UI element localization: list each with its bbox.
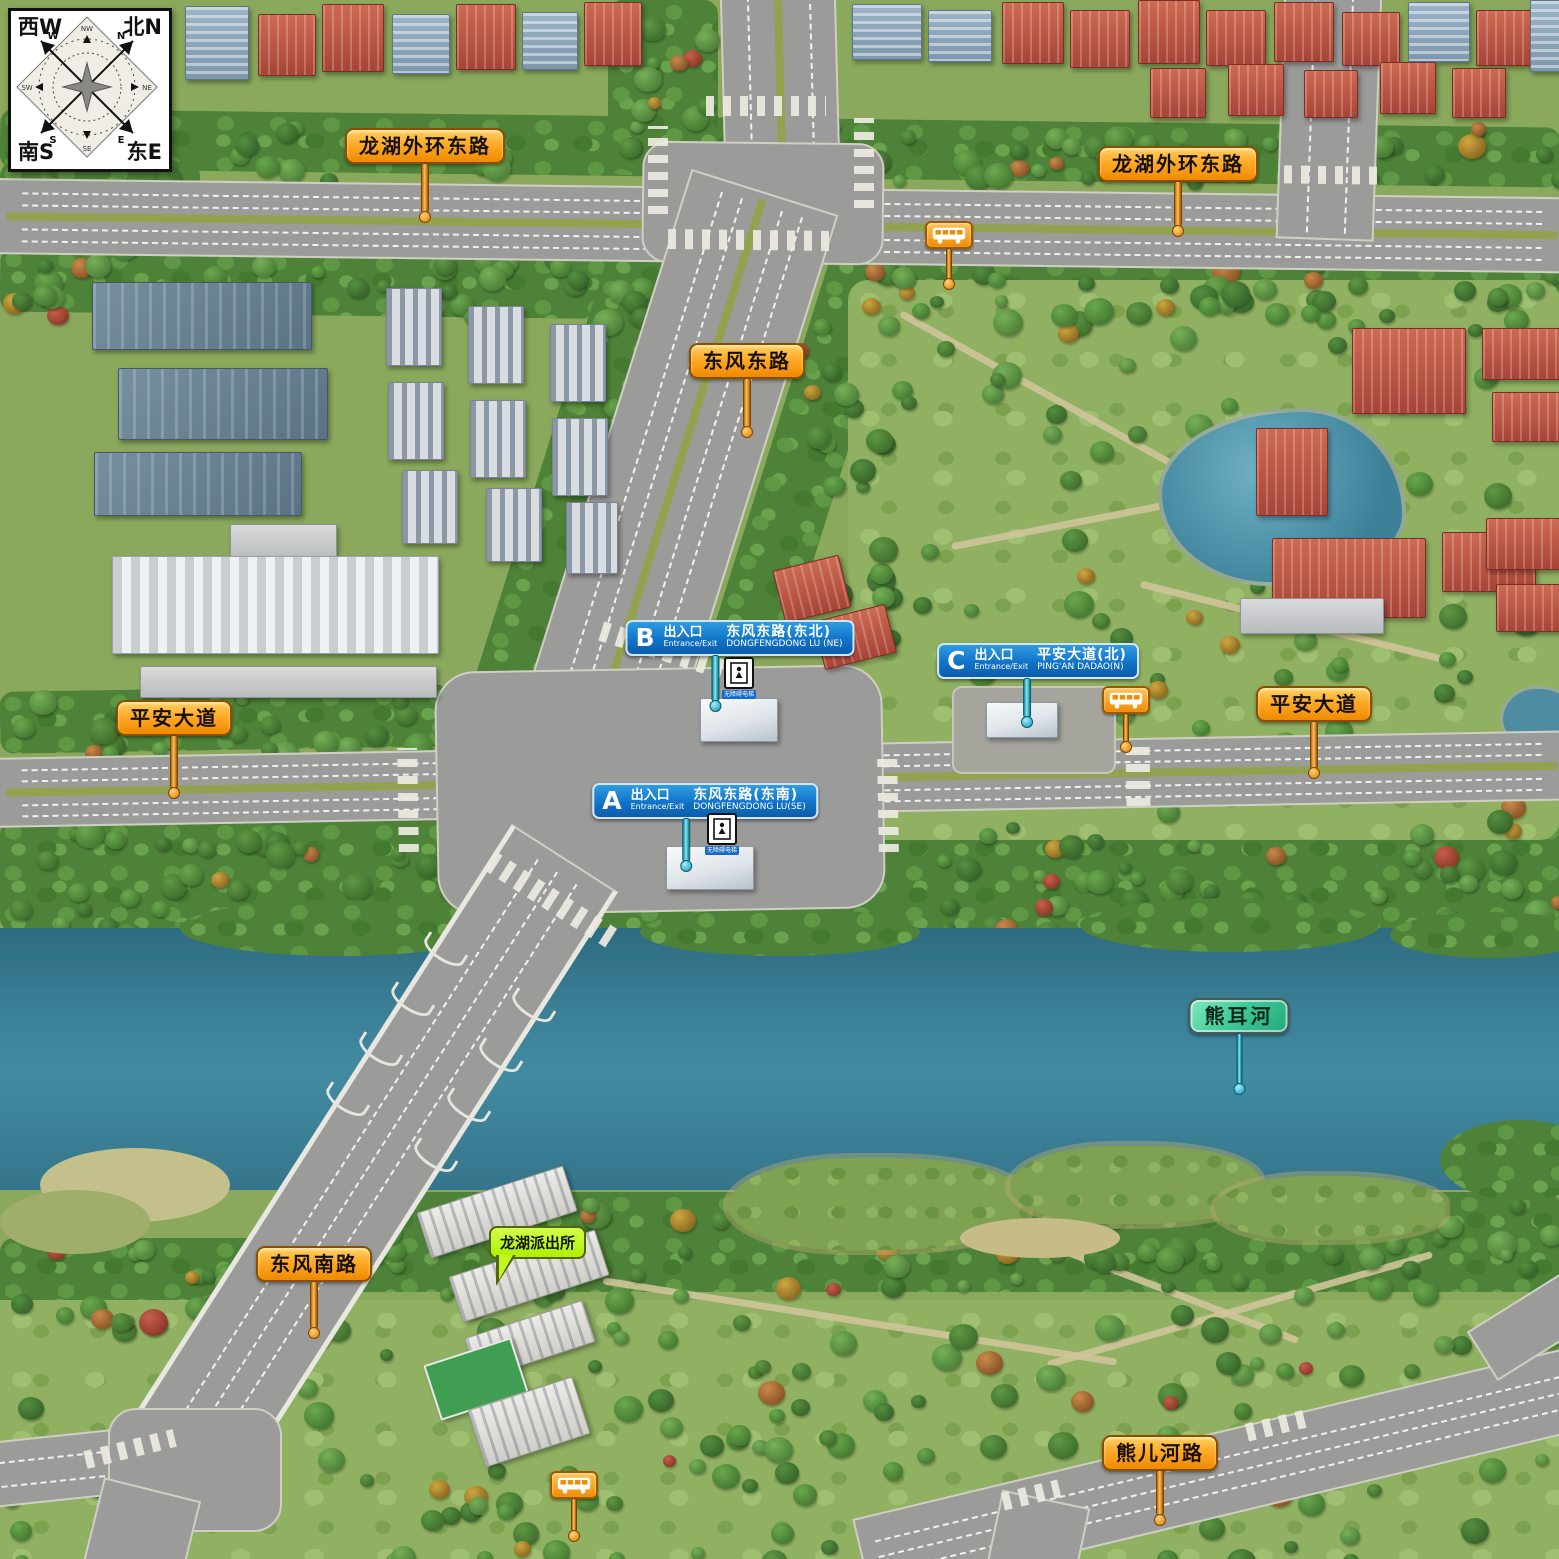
tree — [1536, 147, 1553, 162]
tree — [1166, 869, 1193, 893]
building — [1496, 584, 1559, 632]
tree — [37, 851, 58, 870]
road-sign-label: 平安大道 — [1256, 686, 1372, 722]
sign-pole-tip — [1120, 741, 1132, 753]
tree — [764, 1437, 793, 1463]
tree — [1339, 1365, 1364, 1387]
compass-rose-icon: 西W 北N 南S 东E W N — [8, 8, 172, 172]
tree — [1276, 1363, 1294, 1379]
tree — [1410, 824, 1434, 845]
tree — [742, 1479, 758, 1493]
building — [1482, 328, 1559, 380]
tree — [1206, 1257, 1221, 1271]
tree — [1161, 1281, 1175, 1293]
sign-pole — [682, 818, 690, 862]
tree — [660, 1417, 683, 1438]
bus-stop-1[interactable] — [925, 221, 973, 290]
tree — [1118, 862, 1132, 874]
entrance-road-cn: 东风东路(东南) — [693, 788, 805, 803]
road-sign-dongfeng-east[interactable]: 东风东路 — [689, 343, 805, 438]
tree — [1081, 172, 1095, 185]
tree — [266, 842, 295, 868]
river-sign-xiongerhe[interactable]: 熊耳河 — [1189, 998, 1290, 1095]
tree — [1171, 1305, 1194, 1326]
tree — [1163, 1396, 1178, 1410]
road-sign-label: 熊儿河路 — [1102, 1435, 1218, 1471]
tree — [964, 604, 979, 617]
road-sign-pingan-avenue-2[interactable]: 平安大道 — [1256, 686, 1372, 779]
tree — [1459, 875, 1478, 892]
tree — [826, 1283, 841, 1296]
tree — [984, 163, 1013, 189]
building — [456, 4, 516, 70]
tree — [1284, 1541, 1298, 1553]
tree — [1137, 1243, 1158, 1262]
compass-east-label: 东E — [127, 142, 162, 163]
tree — [1090, 441, 1114, 463]
tree — [755, 1360, 771, 1374]
tree — [648, 1389, 674, 1412]
building — [852, 4, 922, 60]
tree — [1049, 157, 1064, 170]
tree — [1036, 1365, 1065, 1391]
building — [1408, 2, 1470, 62]
tree — [819, 1430, 837, 1446]
tree — [619, 138, 642, 158]
building — [258, 14, 316, 76]
crosswalk — [648, 126, 668, 214]
tree — [613, 1331, 629, 1345]
tree — [1035, 899, 1053, 916]
tree — [937, 855, 951, 867]
tree — [1077, 568, 1095, 584]
building — [386, 288, 442, 366]
building — [388, 382, 444, 460]
building — [92, 282, 312, 350]
sign-pole-tip — [419, 211, 431, 223]
compass-south-label: 南S — [18, 142, 54, 163]
sign-pole — [1023, 678, 1031, 718]
building — [1342, 12, 1400, 66]
road-sign-pingan-avenue-1[interactable]: 平安大道 — [116, 700, 232, 799]
tree — [1078, 276, 1095, 291]
tree — [1451, 1336, 1472, 1355]
tree — [1403, 850, 1421, 866]
tree — [304, 1402, 334, 1429]
tree — [227, 880, 249, 900]
tree — [630, 121, 644, 133]
tree — [477, 1551, 493, 1559]
tree — [937, 341, 955, 357]
building — [1256, 428, 1328, 516]
sign-pole-tip — [568, 1530, 580, 1542]
tree — [1439, 604, 1467, 629]
tree — [1458, 134, 1486, 159]
tree — [990, 373, 1005, 386]
building — [94, 452, 302, 516]
tree — [1304, 272, 1323, 289]
building — [584, 2, 642, 66]
tree — [771, 1523, 794, 1544]
tree — [1386, 1238, 1404, 1254]
crosswalk — [854, 118, 874, 208]
tree — [120, 889, 140, 907]
tree — [514, 1541, 531, 1557]
building — [1150, 68, 1206, 118]
tree — [293, 842, 308, 855]
tree — [1340, 1527, 1360, 1545]
building — [566, 502, 618, 574]
tree — [792, 1363, 811, 1380]
tree — [700, 1435, 724, 1457]
tree — [1234, 1403, 1252, 1420]
crosswalk — [706, 96, 826, 116]
sign-pole — [1236, 1033, 1242, 1085]
tree — [1119, 358, 1136, 373]
tree — [823, 476, 846, 496]
tree — [949, 1324, 978, 1350]
tree — [429, 1480, 450, 1499]
tree — [1500, 1249, 1513, 1261]
river-sign-label: 熊耳河 — [1189, 998, 1290, 1034]
tree — [1551, 170, 1559, 189]
tree — [1062, 138, 1081, 155]
tree — [211, 872, 229, 888]
compass-arrow-e: E — [118, 135, 125, 146]
tree — [1216, 1352, 1241, 1375]
building — [1002, 2, 1064, 64]
tree — [1331, 657, 1348, 672]
tree — [311, 266, 325, 278]
tree — [1156, 1247, 1184, 1272]
building — [1206, 10, 1266, 66]
tree — [1051, 304, 1077, 327]
tree — [139, 1309, 168, 1336]
tree — [1006, 822, 1020, 834]
tree — [18, 1397, 44, 1420]
tree — [917, 1448, 935, 1464]
river-xionger — [0, 928, 1559, 1190]
tree — [1201, 1317, 1229, 1343]
tree — [89, 718, 118, 744]
building — [468, 306, 524, 384]
tree — [1299, 1362, 1313, 1375]
sign-pole-tip — [943, 278, 955, 290]
tree — [865, 263, 885, 281]
tree — [658, 1331, 678, 1349]
building — [1452, 68, 1506, 118]
tree — [1095, 1315, 1124, 1341]
tree — [901, 130, 916, 144]
sign-pole-tip — [741, 426, 753, 438]
tree — [255, 156, 280, 178]
building — [112, 556, 439, 654]
building — [1240, 598, 1384, 634]
tree — [543, 1540, 570, 1559]
tree — [957, 1280, 970, 1292]
tree — [276, 123, 298, 143]
tree — [1370, 889, 1387, 904]
road-sign-longhu-outer-east-2[interactable]: 龙湖外环东路 — [1098, 146, 1258, 237]
accessible-elevator-a: 无障碍电梯 — [705, 813, 739, 855]
building — [402, 470, 458, 544]
compass-north-label: 北N — [123, 17, 162, 38]
river-bank — [1080, 898, 1380, 952]
building — [470, 400, 526, 478]
tree — [1434, 684, 1455, 703]
tree — [670, 1209, 696, 1232]
tree — [806, 426, 831, 449]
tree — [1192, 720, 1210, 736]
tree — [1262, 137, 1278, 151]
road-sign-dongfeng-south[interactable]: 东风南路 — [256, 1246, 372, 1339]
tree — [1484, 483, 1512, 509]
tree — [1199, 297, 1220, 316]
tree — [758, 1381, 785, 1405]
accessible-elevator-label: 无障碍电梯 — [722, 690, 756, 699]
tree — [670, 55, 688, 71]
tree — [1322, 1245, 1343, 1264]
building — [230, 524, 337, 560]
tree — [979, 828, 997, 844]
tree — [1087, 834, 1104, 849]
entrance-road-cn: 平安大道(北) — [1037, 648, 1127, 663]
tree — [13, 718, 35, 738]
tree — [441, 1507, 461, 1525]
tree — [1518, 1260, 1537, 1277]
accessible-elevator-label: 无障碍电梯 — [705, 846, 739, 855]
building — [550, 324, 606, 402]
tree — [1071, 1391, 1094, 1412]
tree — [1274, 669, 1293, 686]
tree — [1501, 879, 1523, 899]
tree — [980, 1435, 1007, 1459]
building — [1070, 10, 1130, 68]
tree — [1294, 1287, 1314, 1305]
tree — [11, 1294, 33, 1314]
tree — [1093, 1252, 1116, 1273]
accessible-elevator-b: 无障碍电梯 — [722, 657, 756, 699]
tree — [182, 838, 199, 853]
tree — [793, 1484, 817, 1506]
tree — [1259, 1324, 1282, 1344]
tree — [881, 1276, 905, 1298]
tree — [1010, 1273, 1023, 1285]
building — [1228, 64, 1284, 116]
tree — [605, 1288, 634, 1314]
crosswalk — [877, 754, 899, 852]
tree — [1328, 337, 1347, 354]
tree — [1413, 1283, 1439, 1306]
tree — [673, 1289, 689, 1303]
tree — [235, 135, 259, 156]
tree — [1204, 885, 1219, 898]
tree — [10, 1521, 32, 1541]
police-station-label: 龙湖派出所 — [500, 1234, 575, 1252]
tree — [1487, 810, 1513, 834]
tree — [85, 254, 111, 278]
tree — [1424, 165, 1445, 184]
tree — [588, 1360, 602, 1373]
tree — [822, 363, 842, 381]
entrance-sign-c[interactable]: C 出入口 Entrance/Exit 平安大道(北) PING'AN DADA… — [937, 643, 1139, 728]
tree — [893, 175, 906, 187]
road-sign-xiongerhe-road[interactable]: 熊儿河路 — [1102, 1435, 1218, 1526]
road-sign-longhu-outer-east-1[interactable]: 龙湖外环东路 — [345, 128, 505, 223]
tree — [988, 272, 1006, 288]
entrance-title-en: Entrance/Exit — [974, 663, 1028, 672]
tree — [894, 269, 916, 289]
tree — [1266, 847, 1286, 865]
crosswalk — [1125, 744, 1150, 806]
tree — [1130, 872, 1144, 885]
bus-stop-icon — [925, 221, 973, 249]
building — [185, 6, 249, 80]
tree — [252, 256, 276, 277]
entrance-road-en: PING'AN DADAO(N) — [1037, 663, 1127, 673]
tree — [976, 1351, 1003, 1375]
tree — [804, 385, 821, 400]
tree — [1348, 277, 1368, 295]
wetland-island — [1215, 1176, 1445, 1240]
building — [1352, 328, 1466, 414]
tree — [663, 1455, 676, 1467]
tree — [1265, 303, 1289, 325]
compass-minor-right: NE — [142, 84, 152, 92]
tree — [614, 1396, 643, 1422]
tree — [1406, 472, 1433, 496]
sign-pole-tip — [168, 787, 180, 799]
tree — [995, 295, 1008, 307]
tree — [912, 303, 930, 319]
tree — [33, 285, 57, 306]
sign-pole — [946, 248, 952, 280]
sign-pole — [421, 163, 429, 213]
tree — [1043, 874, 1060, 889]
tree — [1059, 835, 1084, 858]
tree — [198, 841, 216, 857]
tree — [1160, 277, 1179, 294]
crosswalk — [397, 748, 419, 852]
tree — [185, 1271, 199, 1284]
tree — [365, 725, 389, 747]
tree — [689, 1459, 706, 1474]
building — [1486, 518, 1559, 570]
tree — [634, 67, 662, 92]
tree — [956, 858, 981, 880]
tree — [940, 898, 959, 915]
building — [140, 666, 437, 698]
tree — [260, 716, 280, 734]
bus-stop-3[interactable] — [550, 1471, 598, 1542]
entrance-letter: B — [635, 625, 654, 650]
tree — [1367, 1484, 1382, 1497]
tree — [993, 309, 1023, 336]
tree — [921, 544, 939, 560]
tree — [639, 17, 666, 41]
tree — [1092, 613, 1110, 629]
tree — [869, 537, 898, 563]
sign-pole-tip — [1154, 1514, 1166, 1526]
tree — [360, 1474, 374, 1487]
tree — [421, 1510, 444, 1531]
sign-pole-tip — [1172, 225, 1184, 237]
tree — [29, 690, 57, 715]
tree — [1048, 1432, 1078, 1459]
tree — [913, 597, 932, 614]
river-bank — [640, 908, 920, 956]
sign-pole — [310, 1281, 318, 1329]
entrance-road-en: DONGFENGDONG LU (NE) — [726, 640, 842, 650]
tree — [1535, 1454, 1549, 1466]
tree — [1359, 1247, 1384, 1270]
tree — [911, 1395, 926, 1408]
tree — [1126, 302, 1152, 325]
tree — [1046, 405, 1067, 424]
tree — [151, 901, 169, 917]
tree — [469, 1497, 488, 1515]
tree — [1457, 670, 1473, 684]
entrance-title-cn: 出入口 — [631, 789, 685, 803]
tree — [1220, 636, 1240, 654]
tree — [380, 1349, 393, 1361]
building — [322, 4, 384, 72]
police-station-callout[interactable]: 龙湖派出所 — [489, 1226, 586, 1259]
building — [928, 10, 992, 62]
sign-pole-tip — [1308, 767, 1320, 779]
sign-pole — [711, 655, 719, 702]
crosswalk — [668, 229, 836, 251]
building — [1138, 0, 1200, 64]
tree — [648, 97, 661, 109]
tree — [1440, 866, 1459, 883]
tree — [440, 284, 457, 299]
entrance-title-cn: 出入口 — [974, 649, 1028, 663]
tree — [111, 1313, 132, 1332]
tree — [691, 1547, 705, 1559]
tree — [850, 459, 876, 483]
sign-pole — [1156, 1470, 1164, 1516]
sign-pole — [1174, 181, 1182, 227]
crosswalk — [1284, 165, 1378, 184]
tree — [1062, 529, 1088, 552]
entrance-road-en: DONGFENGDONG LU(SE) — [693, 803, 805, 813]
tree — [1327, 1322, 1345, 1338]
tree — [236, 830, 262, 853]
tree — [68, 883, 89, 902]
tree — [1221, 398, 1238, 414]
sand-shoal — [960, 1218, 1120, 1258]
tree — [12, 292, 32, 310]
tree — [133, 1240, 155, 1260]
tree — [395, 705, 417, 725]
sign-pole — [170, 735, 178, 789]
tree — [1379, 309, 1395, 323]
compass-minor-down: SE — [83, 145, 92, 153]
tree — [1148, 681, 1168, 699]
tree — [1434, 1336, 1454, 1354]
tree — [582, 1198, 599, 1213]
sign-pole — [1310, 721, 1318, 769]
grass-bank — [0, 1190, 150, 1254]
road-sign-label: 东风东路 — [689, 343, 805, 379]
tree — [930, 296, 944, 308]
tree — [728, 1425, 751, 1446]
compass-west-label: 西W — [18, 17, 62, 38]
building — [1530, 0, 1559, 72]
tree — [991, 1384, 1018, 1408]
entrance-title-en: Entrance/Exit — [664, 640, 718, 649]
